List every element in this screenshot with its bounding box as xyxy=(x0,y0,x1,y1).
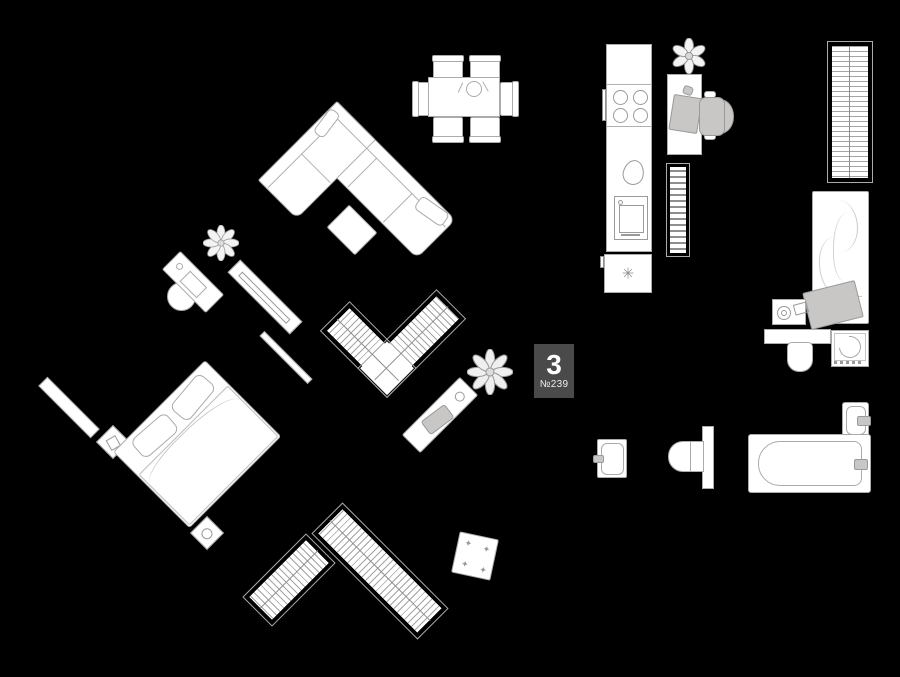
wash-basin xyxy=(787,342,813,372)
knob-icon xyxy=(175,261,185,271)
refrigerator: ✳ xyxy=(604,254,652,293)
bookshelf xyxy=(666,163,690,257)
laptop-icon xyxy=(668,94,702,134)
console-shelf xyxy=(402,377,478,453)
tv-icon xyxy=(238,272,290,324)
sparkle-icon: ✦ xyxy=(460,559,469,569)
apartment-number: №239 xyxy=(540,379,569,391)
plant-icon xyxy=(467,349,513,395)
wall-shelf xyxy=(38,377,100,439)
burner-icon xyxy=(633,90,648,105)
burner-icon xyxy=(613,108,628,123)
burner-icon xyxy=(633,108,648,123)
wall-shelf xyxy=(259,331,312,384)
toilet-tank xyxy=(690,441,704,472)
tall-wardrobe xyxy=(827,41,873,183)
burner-icon xyxy=(613,90,628,105)
decor-icon xyxy=(420,404,454,436)
dining-chair xyxy=(500,82,515,116)
room-count: 3 xyxy=(546,351,562,379)
decor-icon xyxy=(453,390,467,404)
plate-icon xyxy=(466,81,482,97)
floor-plan: 3 №239 ✳ xyxy=(0,0,900,677)
plant-icon xyxy=(203,225,239,261)
decor-icon xyxy=(199,526,215,542)
washing-machine xyxy=(831,330,869,367)
chair-seat xyxy=(699,97,725,136)
sparkle-icon: ✦ xyxy=(464,539,473,549)
bedside-table xyxy=(772,299,806,325)
fridge-handle xyxy=(600,256,604,268)
unit-marker[interactable]: 3 №239 xyxy=(534,344,574,398)
control-strip xyxy=(834,361,864,364)
faucet-icon xyxy=(593,455,604,463)
snowflake-icon: ✳ xyxy=(605,266,651,281)
faucet-icon xyxy=(857,416,871,426)
dining-chair xyxy=(470,117,500,139)
oven xyxy=(614,196,648,240)
ottoman: ✦ ✦ ✦ ✦ xyxy=(451,531,499,580)
bathtub xyxy=(748,434,871,493)
dining-chair xyxy=(433,117,463,139)
dining-table xyxy=(428,77,500,117)
plant-icon xyxy=(670,38,708,74)
sparkle-icon: ✦ xyxy=(482,545,491,555)
cooktop-handle xyxy=(602,89,606,121)
sparkle-icon: ✦ xyxy=(478,565,487,575)
tv-console xyxy=(228,260,303,335)
faucet-icon xyxy=(854,459,868,470)
